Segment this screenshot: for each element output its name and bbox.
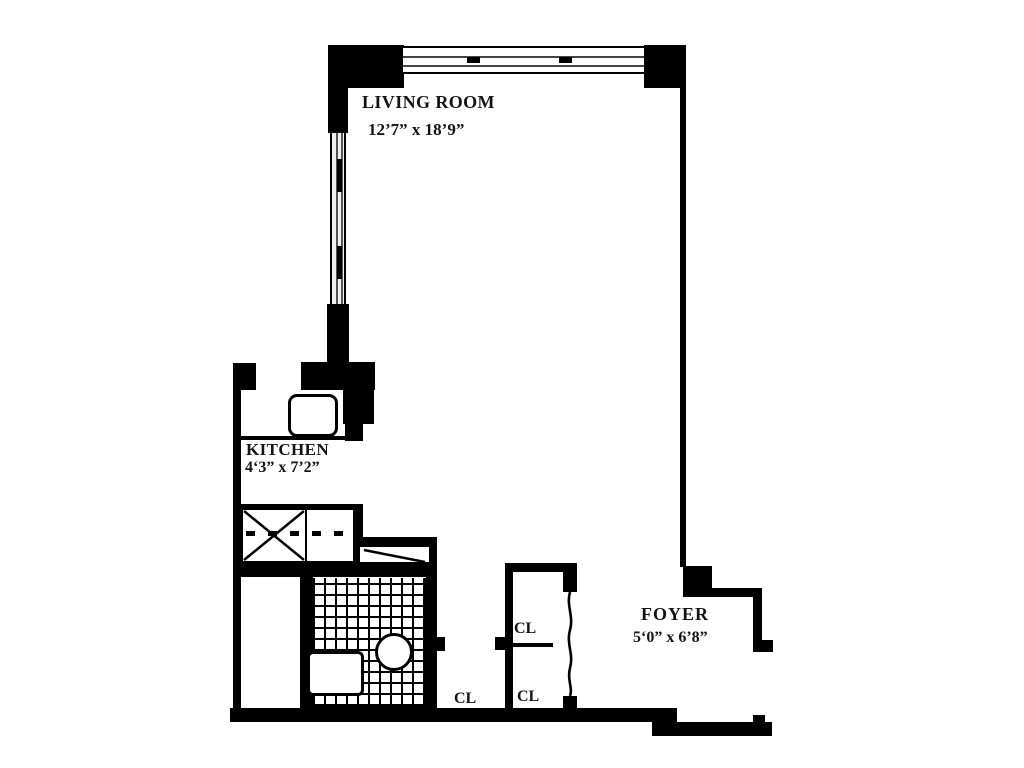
closet-label-hall: CL [454, 690, 476, 708]
wall-segment [680, 88, 686, 567]
wall-segment [327, 304, 349, 365]
door-jamb-tick [753, 715, 765, 723]
closet-label-lower: CL [517, 688, 539, 706]
closet-label-upper: CL [514, 620, 536, 638]
closet-accordion-door [565, 592, 575, 696]
wall-segment [343, 388, 374, 424]
wall-segment [301, 362, 375, 390]
room-dims-living: 12’7” x 18’9” [368, 120, 464, 140]
window-mullion [467, 57, 480, 63]
window [330, 133, 346, 304]
room-dims-foyer: 5‘0” x 6’8” [633, 629, 708, 647]
wall-segment [652, 722, 772, 736]
window-glazing-line [403, 56, 644, 58]
accordion-door-post [563, 571, 577, 592]
door-jamb-tick [437, 637, 445, 651]
window-mullion [337, 246, 342, 279]
kitchen-appliance [288, 394, 338, 437]
wall-segment [358, 537, 433, 547]
room-dims-kitchen: 4‘3” x 7’2” [245, 459, 320, 477]
window [403, 46, 644, 74]
bathroom-door-swing [360, 547, 429, 564]
wall-segment [230, 708, 677, 722]
floor-plan: LIVING ROOM 12’7” x 18’9” KITCHEN 4‘3” x… [0, 0, 1024, 768]
room-label-living: LIVING ROOM [362, 92, 495, 113]
bathtub [307, 651, 364, 696]
accordion-door-post [563, 696, 577, 716]
door-jamb-tick [762, 640, 773, 652]
room-label-foyer: FOYER [641, 604, 709, 625]
wall-segment [644, 45, 686, 88]
door-jamb-tick [495, 637, 505, 650]
wall-segment [753, 588, 762, 652]
window-glazing-line [403, 65, 644, 67]
window-mullion [559, 57, 572, 63]
bathroom-sink [375, 633, 413, 671]
wall-segment [233, 363, 241, 722]
wall-segment [241, 563, 433, 577]
wall-segment [683, 588, 762, 597]
wall-segment [328, 45, 348, 133]
closet-divider-wall [508, 643, 553, 647]
window-mullion [337, 159, 342, 192]
counter-dashed-line [246, 531, 350, 536]
room-label-kitchen: KITCHEN [246, 440, 329, 460]
